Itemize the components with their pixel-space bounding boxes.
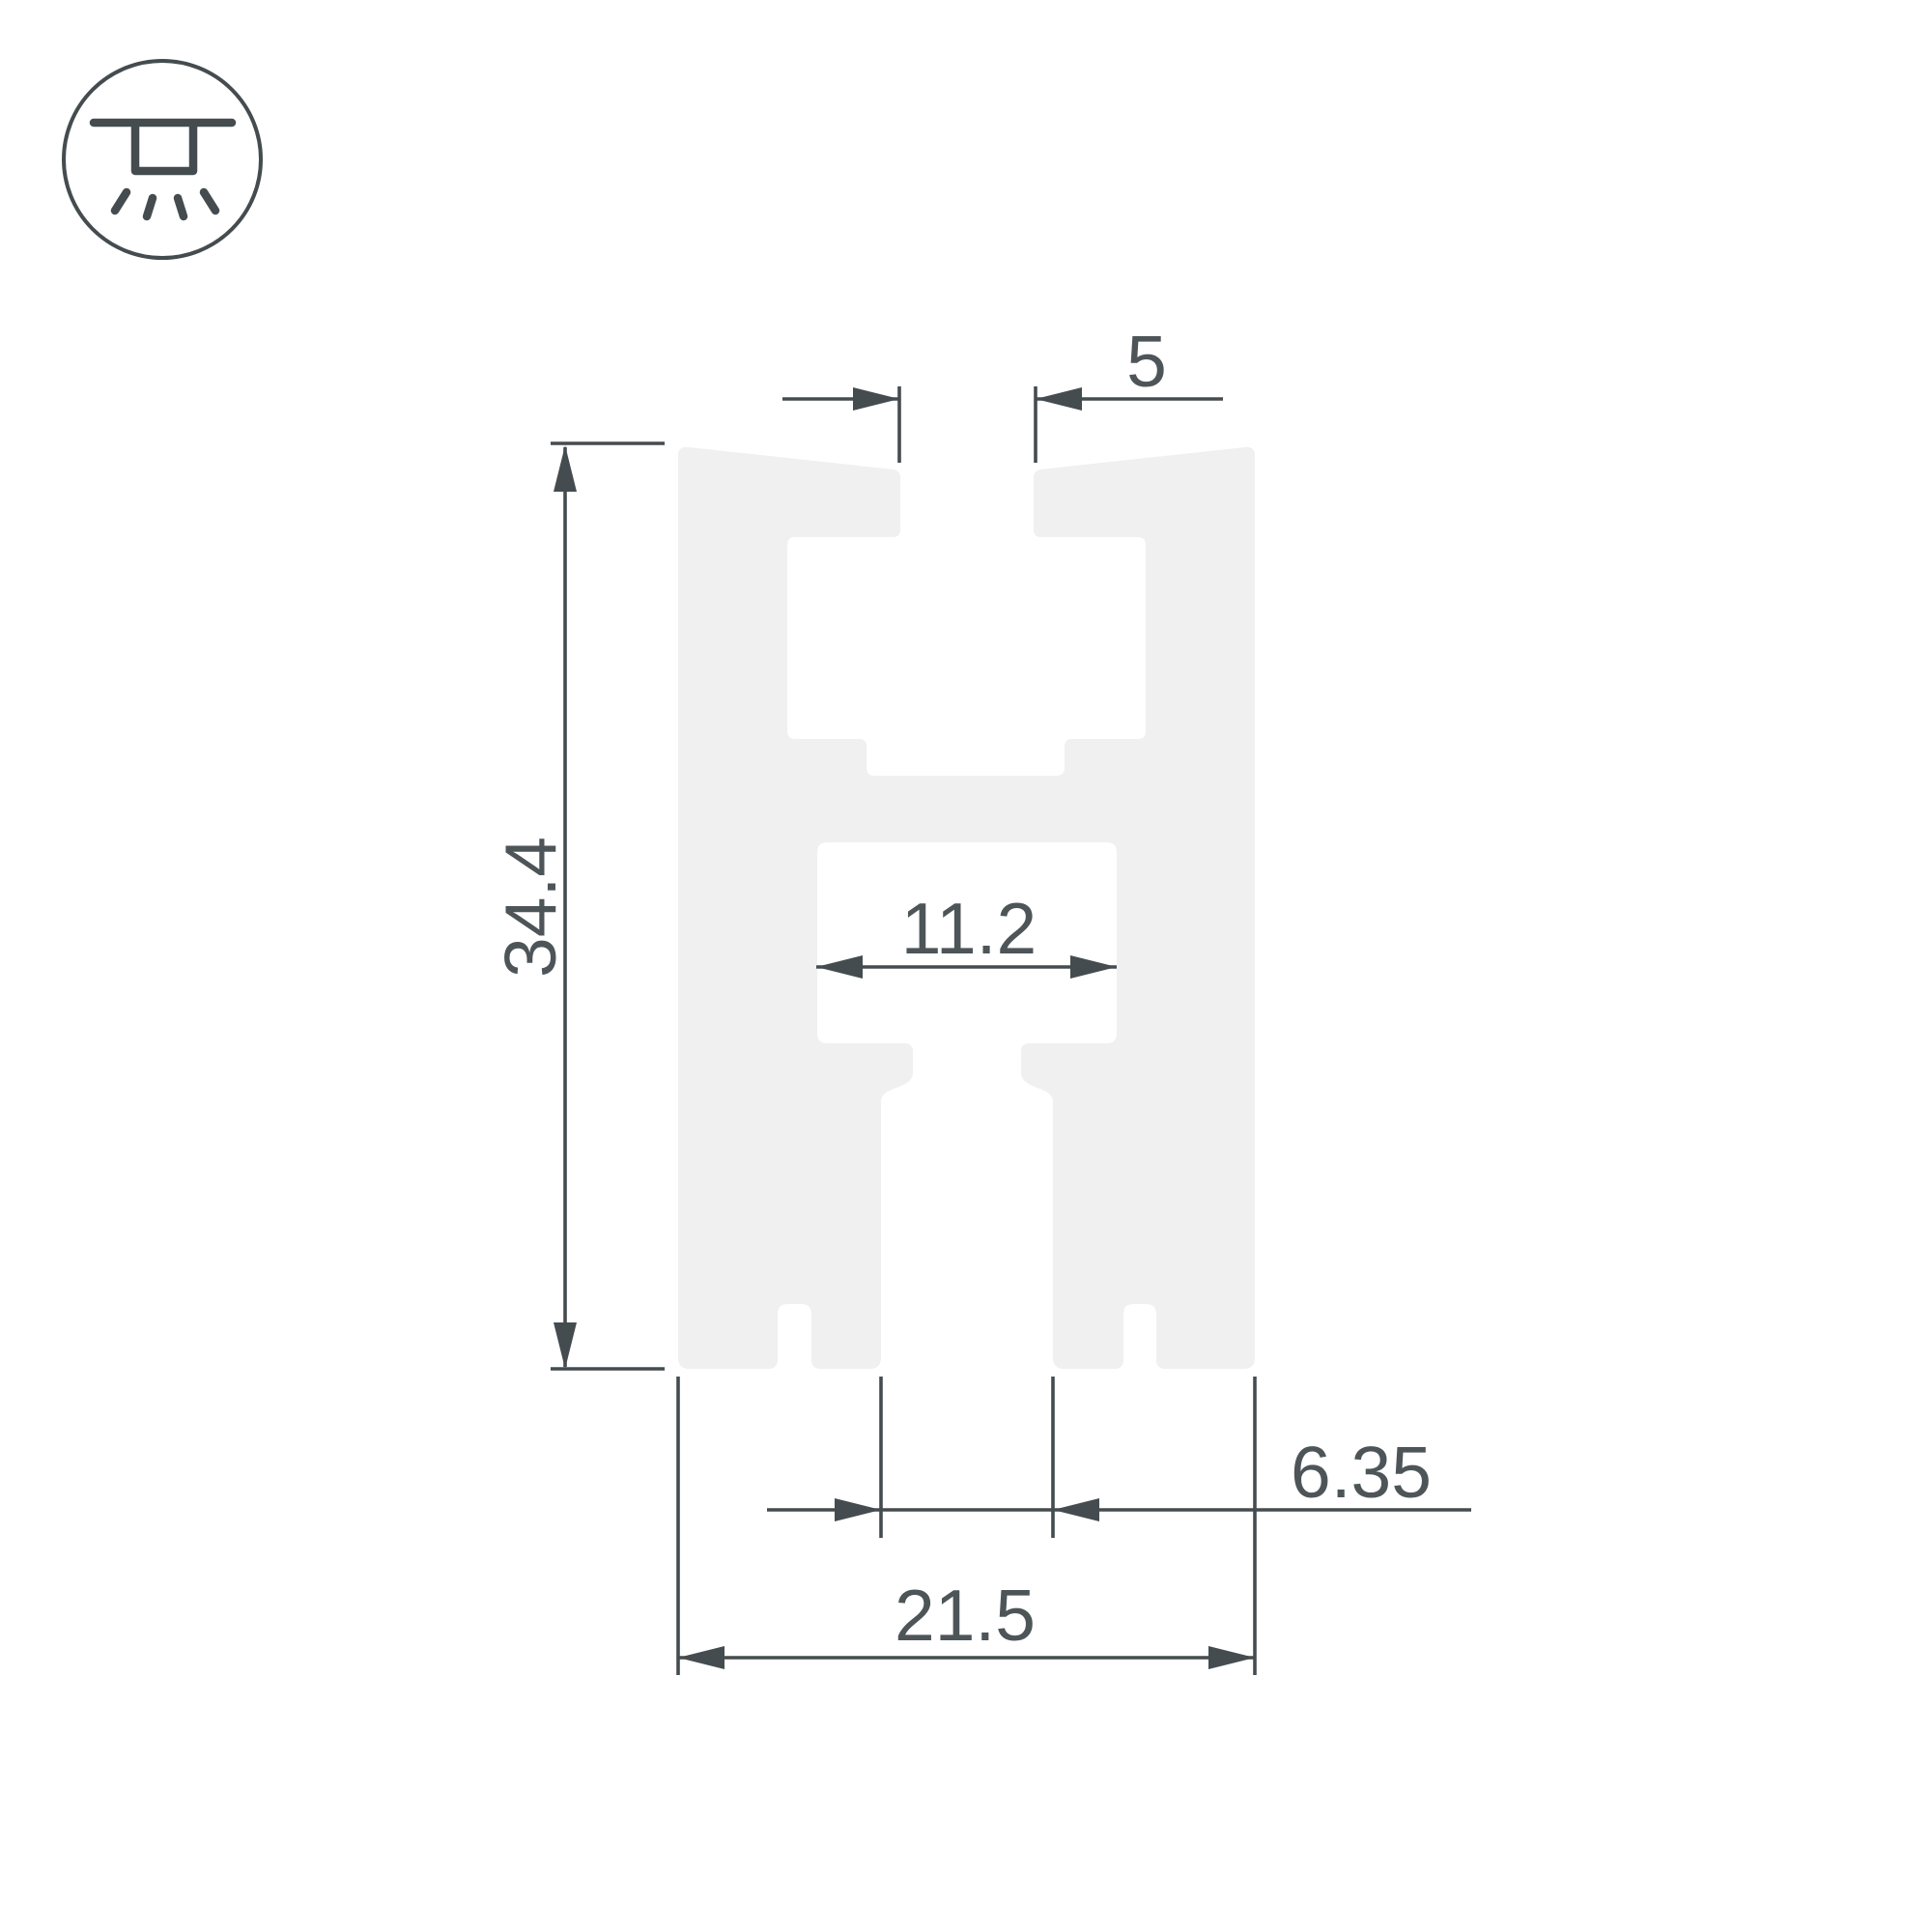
dim-inner-cavity: 11.2 [816, 888, 1117, 979]
light-ray-3 [178, 198, 184, 216]
recessed-light-icon [94, 123, 232, 216]
arrowhead [1036, 387, 1082, 411]
arrowhead [554, 1322, 577, 1369]
technical-drawing: 5 34.4 11.2 6.35 21.5 [0, 0, 1932, 1932]
light-ray-2 [147, 198, 153, 216]
dim-top-slot: 5 [782, 321, 1223, 463]
icon-circle [64, 61, 261, 258]
arrowhead [678, 1646, 724, 1669]
dim-value-bottom-channel: 6.35 [1291, 1432, 1432, 1513]
light-box [135, 125, 193, 171]
arrowhead [853, 387, 899, 411]
light-ray-4 [204, 192, 215, 211]
dim-value-top-slot: 5 [1126, 321, 1167, 402]
dim-value-overall-width: 21.5 [895, 1575, 1036, 1656]
mounting-type-icon [64, 61, 261, 258]
arrowhead [1208, 1646, 1255, 1669]
dim-value-height: 34.4 [490, 837, 571, 978]
page: 5 34.4 11.2 6.35 21.5 [0, 0, 1932, 1932]
arrowhead [835, 1498, 881, 1521]
arrowhead [816, 955, 863, 979]
arrowhead [1070, 955, 1117, 979]
dim-height: 34.4 [490, 443, 665, 1369]
dim-overall-width: 21.5 [678, 1377, 1255, 1675]
light-ray-1 [115, 192, 127, 211]
arrowhead [554, 445, 577, 492]
arrowhead [1053, 1498, 1099, 1521]
dim-value-inner-cavity: 11.2 [901, 888, 1037, 969]
dim-bottom-channel: 6.35 [767, 1377, 1471, 1538]
